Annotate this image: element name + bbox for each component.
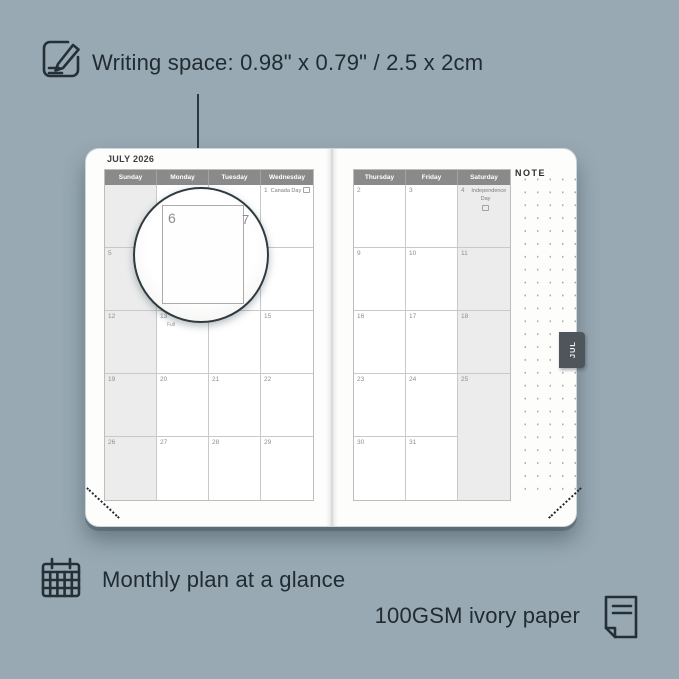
calendar-cell: 2 [354, 185, 406, 248]
calendar-cell: 18 [458, 311, 510, 374]
magnified-day-number: 6 [168, 210, 176, 226]
calendar-cell: 24 [406, 374, 458, 437]
calendar-cell: 9 [354, 248, 406, 311]
calendar-cell: 22 [261, 374, 313, 437]
calendar-cell: 16 [354, 311, 406, 374]
flag-box-icon [303, 187, 310, 193]
writing-space-callout: Writing space: 0.98" x 0.79" / 2.5 x 2cm [92, 50, 483, 76]
calendar-cell: 12 [105, 311, 157, 374]
calendar-cell: 11 [458, 248, 510, 311]
notepad-pencil-icon [37, 35, 85, 83]
calendar-cell-holiday: 1Canada Day [261, 185, 313, 248]
calendar-cell: 20 [157, 374, 209, 437]
month-tab: JUL [559, 332, 585, 368]
product-image: Writing space: 0.98" x 0.79" / 2.5 x 2cm… [0, 0, 679, 679]
month-tab-label: JUL [568, 341, 577, 358]
weekday-header-row: Thursday Friday Saturday [354, 170, 510, 185]
calendar-body: 2 3 4Independence Day 9 10 11 16 17 18 2… [354, 185, 510, 500]
weekday-header: Saturday [458, 170, 510, 185]
magnifier-circle: 6 7 [133, 187, 269, 323]
weekday-header: Thursday [354, 170, 406, 185]
weekday-header: Monday [157, 170, 209, 185]
calendar-cell: 3 [406, 185, 458, 248]
calendar-cell: 19 [105, 374, 157, 437]
page-seam [326, 149, 338, 526]
calendar-cell: 27 [157, 437, 209, 500]
holiday-label: Canada Day [271, 188, 302, 194]
magnified-adjacent-day: 7 [242, 212, 249, 227]
calendar-cell: 17 [406, 311, 458, 374]
calendar-cell-holiday: 4Independence Day [458, 185, 510, 248]
holiday-label: Independence Day [471, 188, 506, 202]
monthly-plan-callout: Monthly plan at a glance [102, 567, 345, 593]
paper-sheet-icon [598, 593, 640, 643]
weekday-header-row: Sunday Monday Tuesday Wednesday [105, 170, 313, 185]
calendar-cell: 15 [261, 311, 313, 374]
calendar-cell [458, 437, 510, 500]
moon-phase-label: Full [167, 322, 208, 329]
weekday-header: Tuesday [209, 170, 261, 185]
calendar-grid-icon [37, 556, 85, 602]
calendar-cell: 30 [354, 437, 406, 500]
calendar-cell: 25 [458, 374, 510, 437]
calendar-cell: 28 [209, 437, 261, 500]
weekday-header: Friday [406, 170, 458, 185]
calendar-cell: 21 [209, 374, 261, 437]
paper-callout: 100GSM ivory paper [375, 603, 580, 629]
flag-box-icon [482, 205, 489, 211]
note-label: NOTE [515, 168, 549, 178]
calendar-cell: 31 [406, 437, 458, 500]
calendar-cell: 23 [354, 374, 406, 437]
weekday-header: Sunday [105, 170, 157, 185]
weekday-header: Wednesday [261, 170, 313, 185]
month-title: JULY 2026 [107, 154, 154, 164]
right-calendar-grid: Thursday Friday Saturday 2 3 4Independen… [353, 169, 511, 501]
calendar-cell: 10 [406, 248, 458, 311]
calendar-cell: 29 [261, 437, 313, 500]
calendar-cell: 26 [105, 437, 157, 500]
